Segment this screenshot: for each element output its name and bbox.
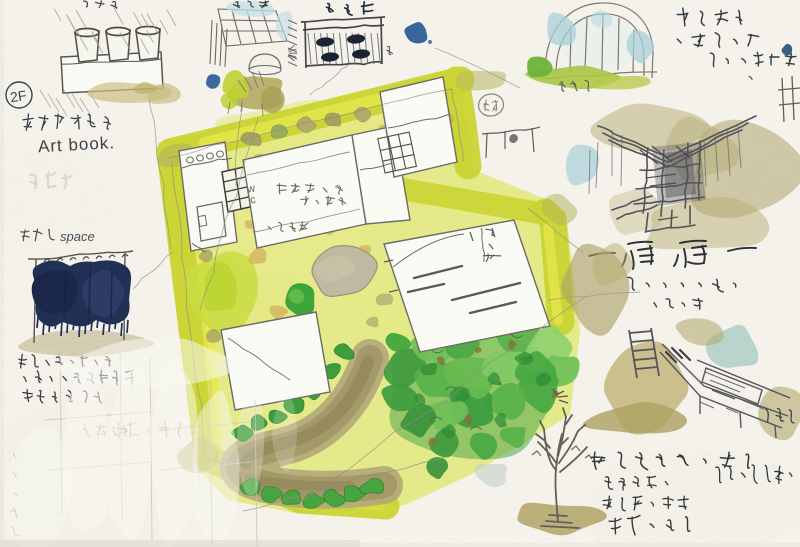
svg-text:space: space xyxy=(60,229,95,244)
svg-text:2F: 2F xyxy=(9,87,27,105)
svg-text:Art book.: Art book. xyxy=(38,133,116,156)
